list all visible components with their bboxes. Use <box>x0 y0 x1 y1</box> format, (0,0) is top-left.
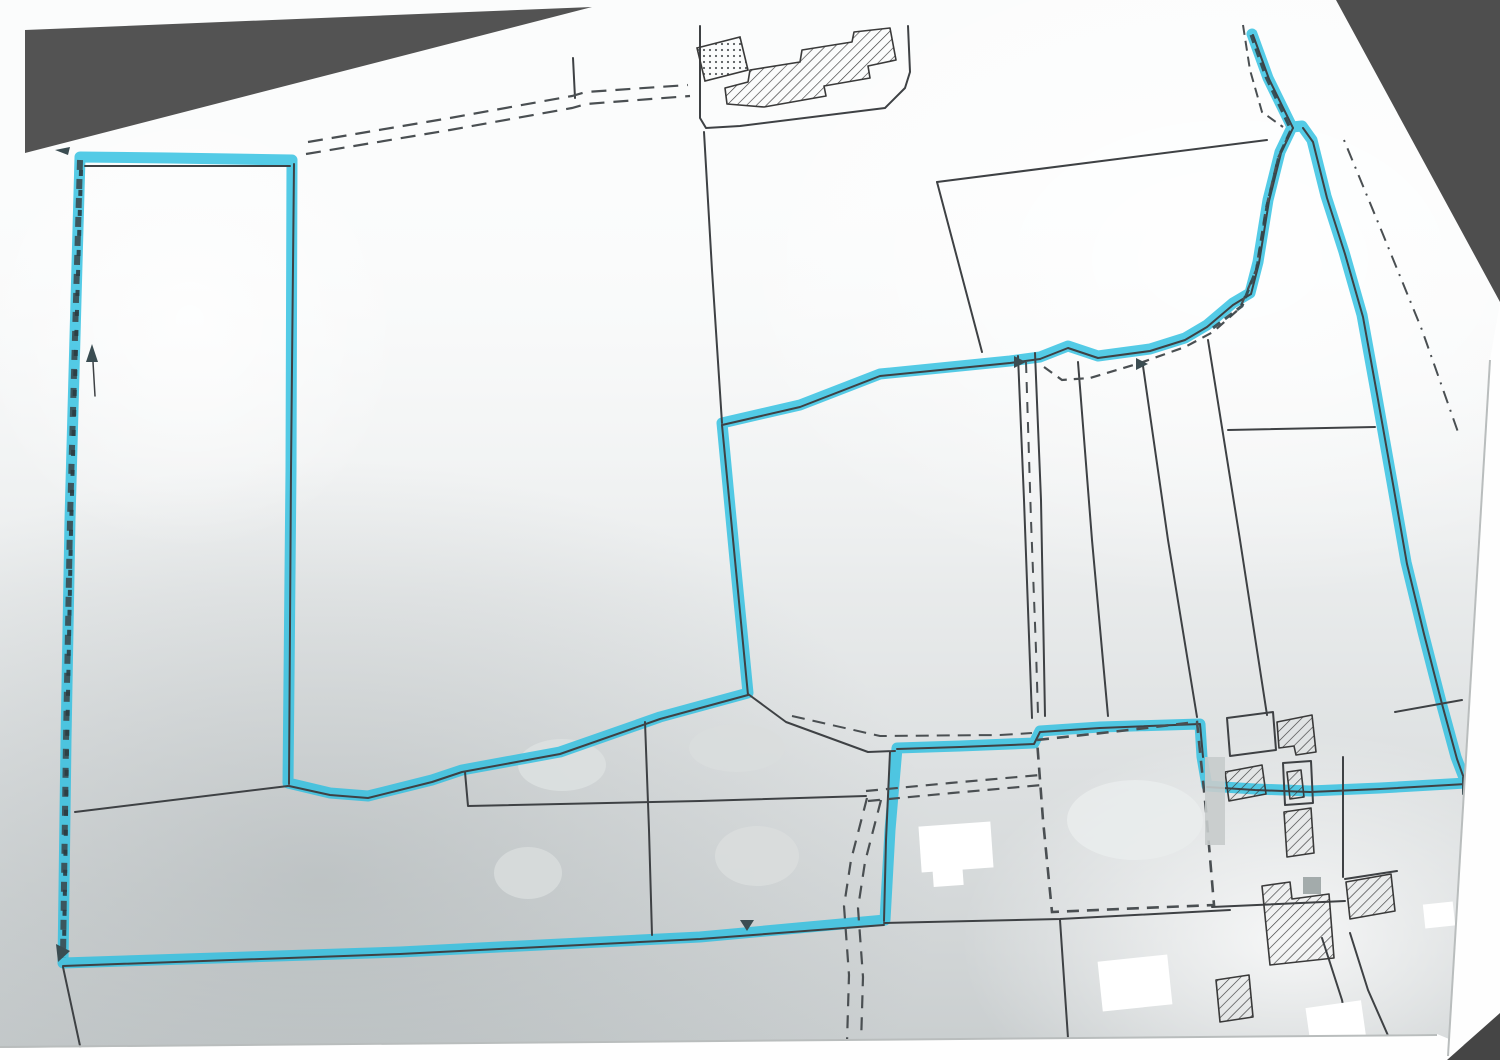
white-out-patch <box>918 822 993 873</box>
gray-yard-patch <box>1205 757 1225 845</box>
white-out-patch <box>1098 954 1173 1011</box>
pencil-smudge <box>689 724 785 772</box>
building-hatched-barn-w <box>1225 765 1266 801</box>
white-out-patch <box>932 865 963 887</box>
scanned-map-page <box>0 0 1500 1060</box>
building-hatched-shed-mid <box>1287 770 1304 799</box>
white-out-patch <box>1423 901 1455 928</box>
building-hatched-shed-s <box>1284 808 1314 857</box>
building-hatched-barn-s <box>1216 975 1253 1022</box>
gray-yard-patch <box>1303 877 1321 894</box>
field-plan-map <box>0 0 1500 1060</box>
pencil-smudge <box>494 847 562 899</box>
pencil-smudge <box>1067 780 1203 860</box>
building-hatched-barn-e <box>1346 874 1395 919</box>
pencil-smudge <box>715 826 799 886</box>
